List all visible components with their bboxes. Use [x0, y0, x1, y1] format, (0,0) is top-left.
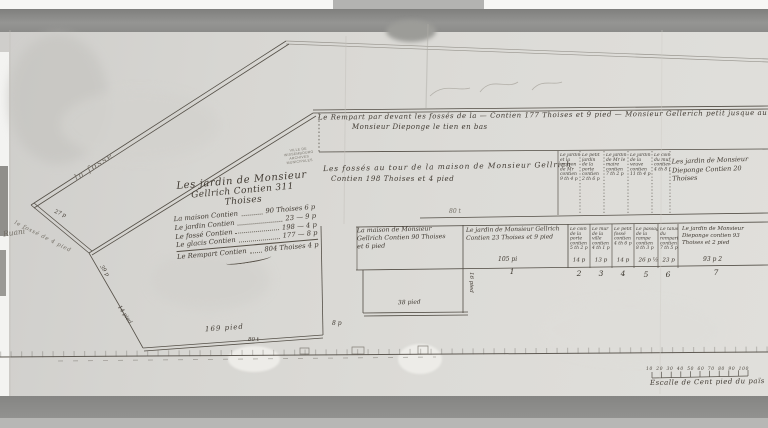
scan-shadow-bottom: [0, 396, 768, 418]
parcel6-width: 23 p: [662, 257, 673, 263]
fosses-inscription-line2: Contien 198 Thoises et 4 pied: [331, 175, 454, 183]
jardin-dieponge-lower-block: Le jardin de MonsieurDieponge contien 93…: [682, 226, 768, 247]
glacis-outer-line: [286, 41, 768, 62]
rampart-inscription-line2: Monsieur Dieponge le tien en bas: [352, 123, 488, 131]
upper-column-text: Le coindu murcontien4 th 8 p: [654, 153, 670, 172]
parcel3-width: 13 p: [595, 257, 607, 263]
lower-table-column-5: Le passagede larampecontien8 th 3 p: [636, 227, 658, 259]
lower-table-column-2: Le coinde laportecontien5 th 2 p: [570, 227, 590, 259]
rampart-band-lines: [313, 106, 768, 316]
edge-measure-80t: 80 t: [248, 337, 259, 343]
lower-column-text: Le petitfossécontien4 th 6 p: [614, 227, 634, 246]
scanned-manuscript-plan: Le Rempart par devant les fossés de la —…: [0, 0, 768, 428]
edge-measure-80t-band: 80 t: [449, 208, 461, 215]
legend-item-value: 804 Thoises 4 p: [264, 241, 319, 254]
legend-block: Les jardin de Monsieur Gellrich Contien …: [170, 169, 319, 269]
parcel7-width: 93 p 2: [703, 256, 722, 263]
upper-table-column-3: Le jardinde Mr lemairecontien7 th 2 p: [606, 153, 628, 215]
parcel2-number: 2: [574, 269, 584, 278]
scale-bar-numbers: 10 20 30 40 50 60 70 80 90 100: [646, 366, 707, 371]
parcel6-number: 6: [663, 270, 673, 279]
jardin-dieponge-upper-block: Les jardin de MonsieurDieponge Contien 2…: [672, 154, 768, 183]
lower-table-column-4: Le petitfossécontien4 th 6 p: [614, 227, 634, 259]
edge-measure-38pied: 38 pied: [398, 299, 421, 307]
parcel5-number: 5: [641, 270, 651, 279]
scan-edge-bottom: [0, 418, 768, 428]
parcel2-width: 14 p: [573, 257, 585, 263]
parcel5-width: 26 p ½: [639, 257, 654, 263]
edge-measure-8p: 8 p: [332, 320, 342, 327]
lower-column-text: Le talusdurempartcontien7 th 5 p: [660, 227, 678, 251]
lower-column-text: Le coinde laportecontien5 th 2 p: [570, 227, 590, 251]
maison-gellrich-block: La maison de MonsieurGellrich Contien 90…: [357, 225, 464, 252]
bottom-rule-hatched: [0, 346, 768, 361]
lower-table-column-3: Le murde lavillecontien4 th 1 p: [592, 227, 612, 259]
lower-column-text: Le murde lavillecontien4 th 1 p: [592, 227, 612, 251]
upper-column-text: Le jardinde Mr lemairecontien7 th 2 p: [606, 153, 628, 177]
dotted-leader: [250, 252, 262, 254]
scale-bar-numbers-box: 10 20 30 40 50 60 70 80 90 100: [646, 366, 756, 375]
upper-table-column-2: Le petitjardinde laportecontien2 th 6 p: [582, 153, 604, 215]
parcel3-number: 3: [596, 269, 606, 278]
plan-linework: [0, 0, 768, 428]
upper-table-column-1: Le jardinet lamaisonde Mrcontien9 th 4 p: [560, 153, 580, 215]
upper-column-text: Le jardinet lamaisonde Mrcontien9 th 4 p: [560, 153, 580, 182]
parcel1-width: 105 pi: [498, 256, 517, 263]
parcel1-number: 1: [507, 267, 517, 276]
lower-column-text: Le passagede larampecontien8 th 3 p: [636, 227, 658, 251]
jardin-gellrich-block: Le jardin de Monsieur GellrichContien 23…: [466, 225, 568, 242]
edge-measure-16pied: 16 pied: [468, 272, 474, 293]
archive-stamp: VILLE DE WISSEMBOURGARCHIVESMUNICIPALES: [274, 145, 326, 183]
parcel4-width: 14 p: [617, 257, 629, 263]
upper-table-column-5: Le coindu murcontien4 th 8 p: [654, 153, 670, 215]
upper-table-column-4: Le jardinde laveuvecontien11 th 4 p: [630, 153, 652, 215]
parcel7-number: 7: [711, 268, 721, 277]
upper-column-text: Le petitjardinde laportecontien2 th 6 p: [582, 153, 604, 182]
lower-table-column-6: Le talusdurempartcontien7 th 5 p: [660, 227, 678, 259]
upper-column-text: Le jardinde laveuvecontien11 th 4 p: [630, 153, 652, 177]
parcel4-number: 4: [618, 269, 628, 278]
